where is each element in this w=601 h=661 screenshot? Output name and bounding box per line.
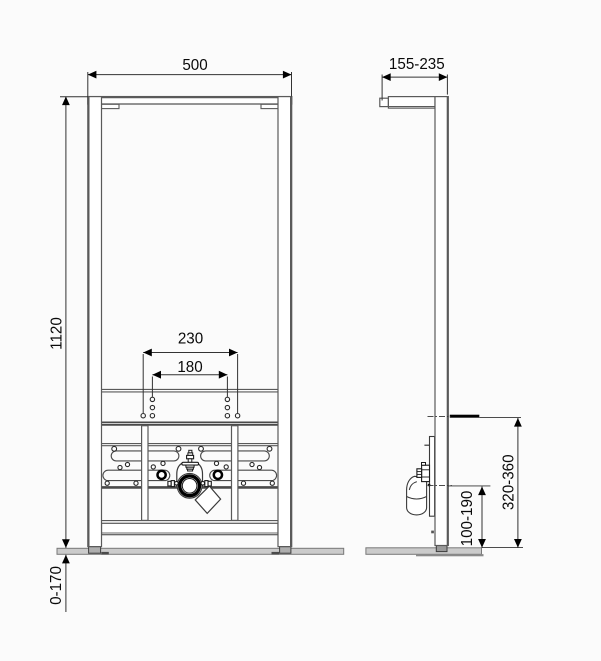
svg-text:155-235: 155-235 xyxy=(389,56,445,73)
svg-text:320-360: 320-360 xyxy=(500,454,517,510)
svg-text:230: 230 xyxy=(178,330,204,347)
svg-text:100-190: 100-190 xyxy=(459,490,476,546)
svg-text:180: 180 xyxy=(177,358,203,375)
svg-text:1120: 1120 xyxy=(48,317,65,350)
svg-text:0-170: 0-170 xyxy=(48,566,65,605)
svg-text:500: 500 xyxy=(182,57,208,74)
